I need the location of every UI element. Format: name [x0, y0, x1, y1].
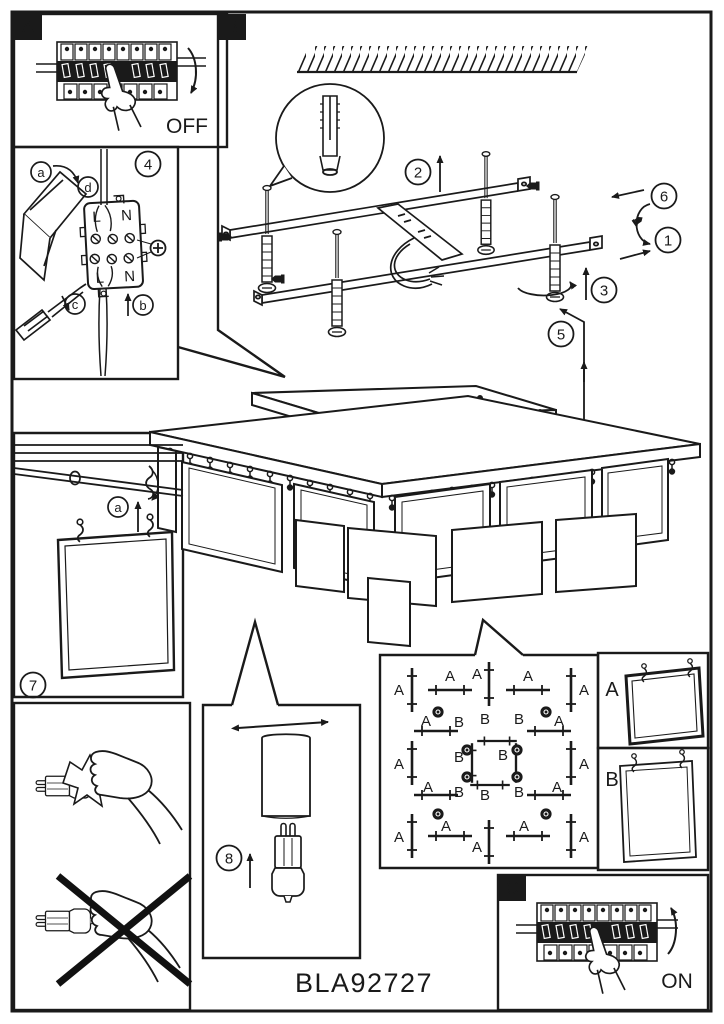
turn-off-arrow — [188, 48, 196, 93]
screw-plug-1 — [259, 186, 276, 293]
panel-7-hanging: a 7 — [14, 445, 183, 698]
svg-text:A: A — [441, 818, 451, 835]
panel-b-mounting: B — [218, 14, 681, 440]
terminal-cover — [20, 172, 86, 280]
plan-b-labels: B B B B B B B B — [454, 711, 524, 804]
wall-plug-detail-bubble — [270, 84, 384, 192]
svg-text:B: B — [514, 784, 524, 801]
letter-d: d — [84, 180, 91, 195]
letter-b: b — [139, 298, 146, 313]
step-3-number: 3 — [600, 283, 608, 300]
screwdriver — [16, 284, 86, 340]
shade-type-b-panel: B — [605, 750, 696, 862]
svg-text:A: A — [554, 713, 564, 730]
plan-screw-dots — [432, 706, 551, 819]
svg-text:A: A — [394, 829, 404, 846]
glass-shade-7 — [58, 514, 174, 678]
panel-8-bulb: 8 — [217, 722, 329, 902]
terminal-n-bottom: N — [124, 268, 136, 286]
svg-text:A: A — [579, 829, 589, 846]
panel-b-tag: B — [226, 17, 238, 37]
model-number: BLA92727 — [295, 968, 433, 998]
svg-text:B: B — [454, 749, 464, 766]
svg-text:B: B — [454, 784, 464, 801]
panel-c-tag: C — [506, 878, 519, 898]
shade-layout-plan: A A A A A A A A A A A A A A A A B B B B … — [394, 662, 589, 864]
shade-b-hook-left — [632, 754, 637, 772]
shade-b-tag: B — [605, 769, 618, 791]
plan-lines — [407, 662, 576, 864]
terminal-l-bottom: L — [95, 270, 104, 287]
cylinder-shade — [262, 734, 310, 818]
step-5-number: 5 — [557, 327, 565, 344]
svg-text:A: A — [423, 779, 433, 796]
panel-c-breaker-on: C ON — [498, 875, 693, 994]
step-7-number: 7 — [29, 678, 37, 695]
letter-a: a — [37, 165, 45, 180]
svg-text:A: A — [519, 818, 529, 835]
shade-type-a-panel: A — [605, 659, 703, 744]
svg-text:A: A — [579, 756, 589, 773]
hanging-hook — [146, 466, 158, 500]
ceiling-hatch — [297, 46, 589, 72]
svg-text:A: A — [445, 668, 455, 685]
screw-plug-3 — [478, 152, 494, 255]
svg-text:A: A — [394, 756, 404, 773]
step-2-number: 2 — [414, 165, 422, 182]
panel-a-breaker-off: A OFF — [14, 14, 208, 138]
svg-text:A: A — [472, 666, 482, 683]
svg-text:B: B — [498, 747, 508, 764]
svg-text:A: A — [552, 779, 562, 796]
g9-bulb-bare — [36, 909, 95, 933]
shade-a-tag: A — [605, 679, 619, 701]
panel-4-wiring: 4 L N L N — [16, 149, 166, 376]
step-8-number: 8 — [225, 851, 233, 868]
step-4-number: 4 — [144, 157, 152, 174]
g9-bulb-vertical — [272, 824, 304, 903]
letter-c: c — [72, 297, 79, 312]
ceiling-lamp-drawing — [150, 386, 700, 646]
svg-text:B: B — [514, 711, 524, 728]
svg-text:A: A — [472, 839, 482, 856]
bulb-handling-panel — [36, 751, 190, 984]
instruction-drawing: A OFF 4 L N L N — [0, 0, 724, 1024]
svg-text:B: B — [480, 711, 490, 728]
terminal-n-top: N — [121, 207, 133, 225]
svg-text:B: B — [454, 714, 464, 731]
terminal-block: L N L N — [79, 194, 149, 297]
svg-text:A: A — [394, 682, 404, 699]
inner-glass-panels — [296, 514, 636, 646]
step-1-number: 1 — [664, 233, 672, 250]
fixing-screw-2 — [271, 275, 285, 284]
hand-with-cloth — [91, 751, 183, 844]
on-label: ON — [661, 970, 693, 993]
instruction-sheet: A OFF 4 L N L N — [0, 0, 724, 1024]
off-label: OFF — [166, 115, 208, 138]
letter-a-hang: a — [114, 500, 122, 515]
panel-a-tag: A — [22, 17, 34, 37]
svg-text:B: B — [480, 787, 490, 804]
mounting-rails — [222, 177, 602, 305]
svg-text:A: A — [523, 668, 533, 685]
svg-text:A: A — [421, 713, 431, 730]
turn-on-arrow — [668, 908, 676, 954]
svg-text:A: A — [579, 682, 589, 699]
step-6-number: 6 — [660, 189, 668, 206]
shade-b-hook-right — [680, 750, 685, 768]
